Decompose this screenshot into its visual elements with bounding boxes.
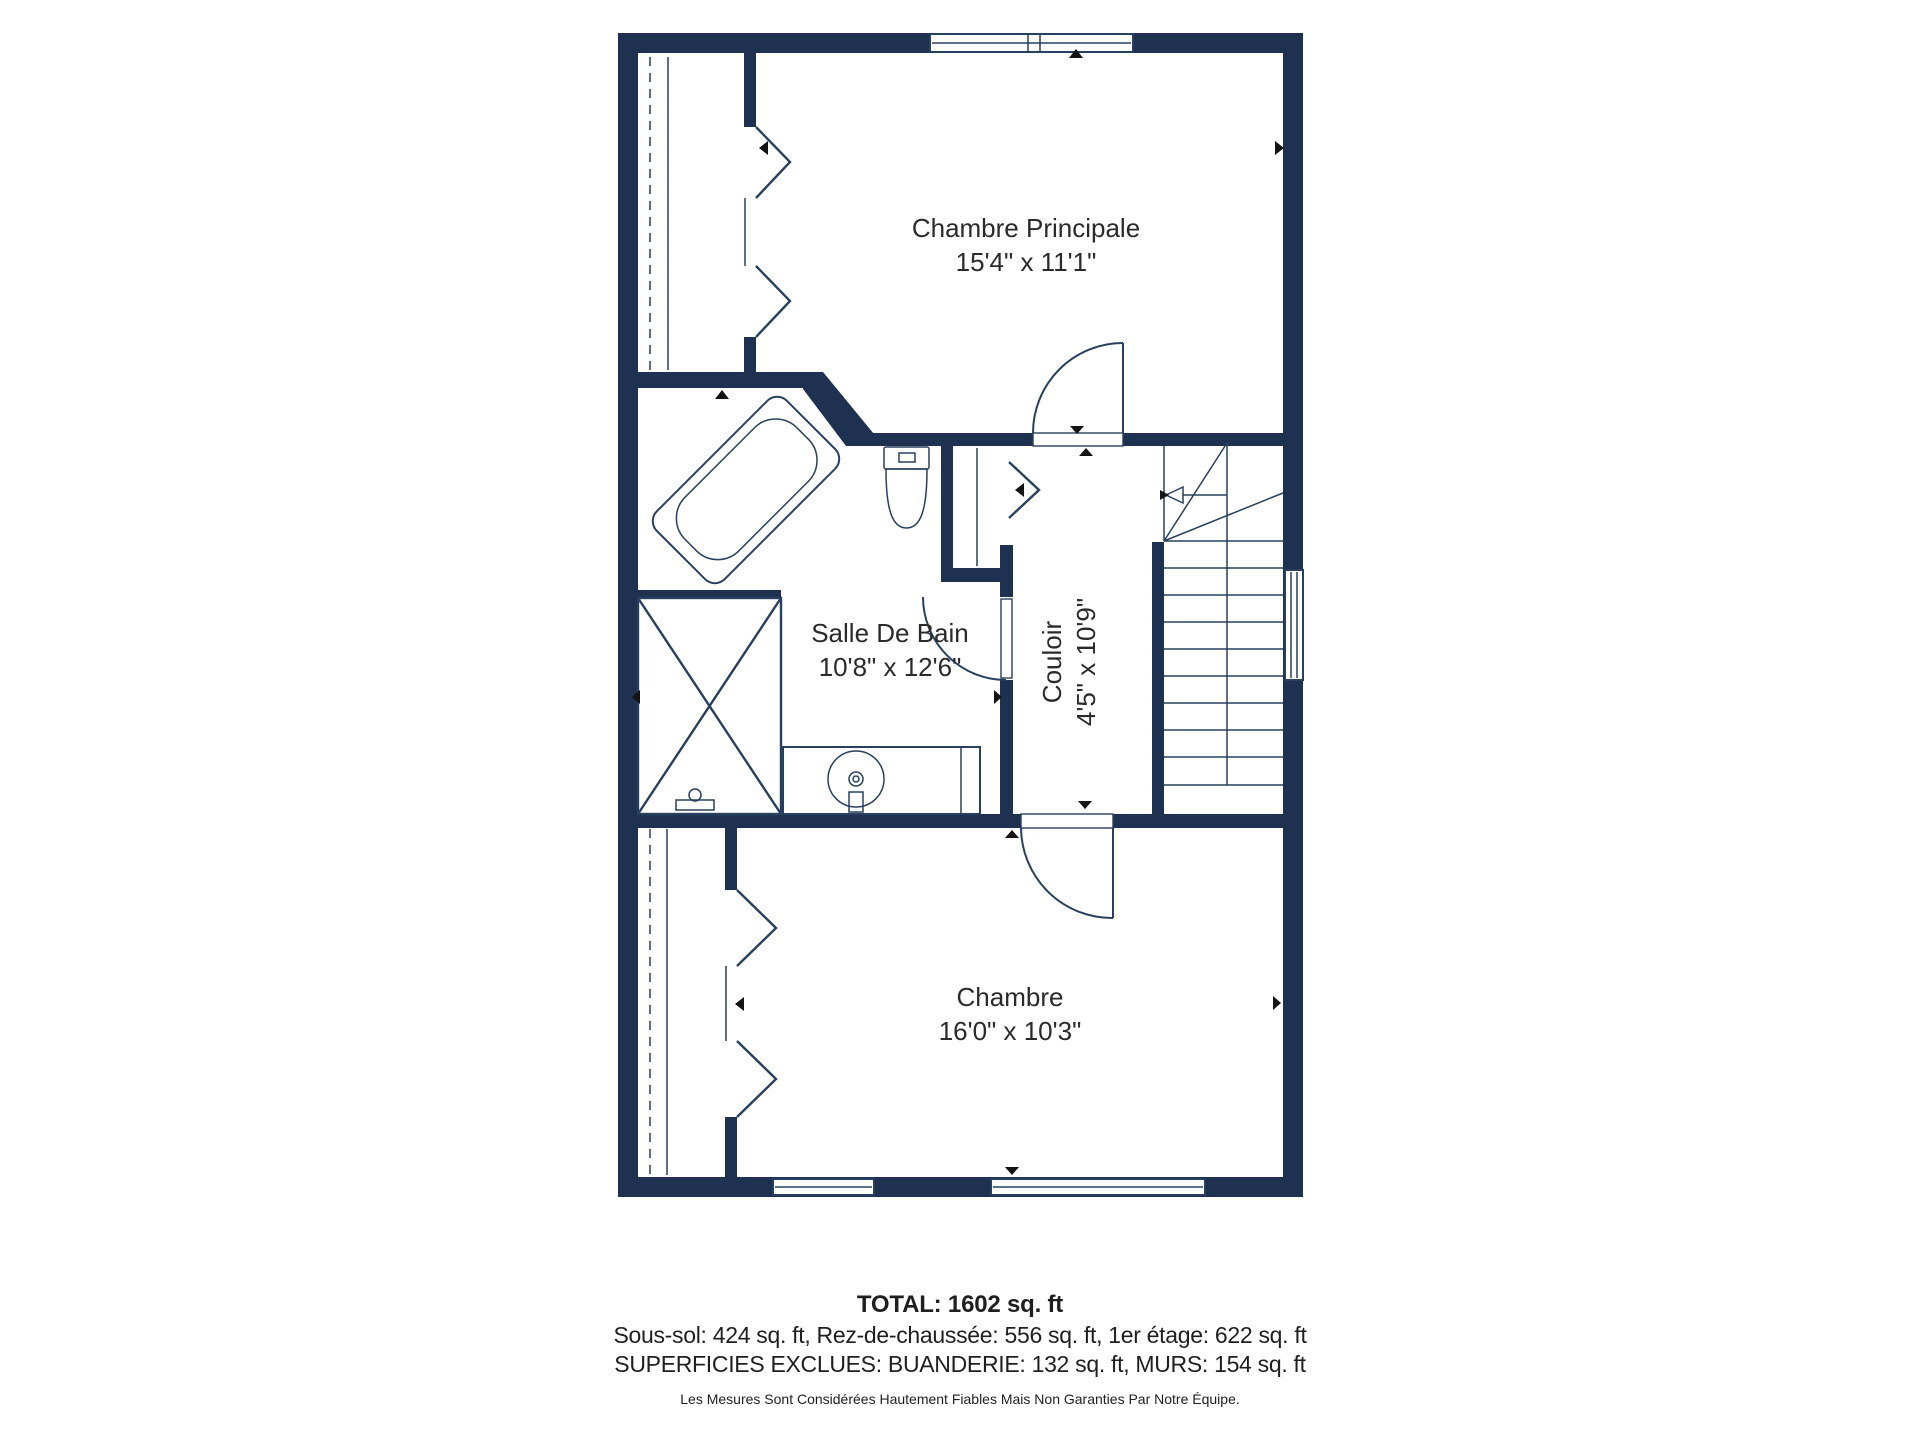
wall-closet-top-pier-a <box>744 53 756 127</box>
door-bedroom2 <box>1021 814 1113 918</box>
label-chambre-dims: 16'0" x 10'3" <box>939 1016 1082 1046</box>
wall-bath-top <box>618 372 805 388</box>
wall-hall-west-pier <box>1000 545 1013 597</box>
closet-bedroom2-interior <box>650 829 667 1175</box>
vanity-sink <box>783 747 980 814</box>
wall-shower-stub <box>618 590 781 598</box>
stairs <box>1160 443 1283 785</box>
marker-tub <box>715 390 729 399</box>
label-chambre-principale-dims: 15'4" x 11'1" <box>956 247 1097 277</box>
wall-linen-left <box>941 446 953 568</box>
wall-mid-right <box>1123 433 1283 446</box>
shower <box>638 598 781 814</box>
marker-master-right <box>1275 141 1284 155</box>
wall-left <box>618 33 638 1197</box>
stair-direction-arrow <box>1160 487 1227 503</box>
summary-exclusions: SUPERFICIES EXCLUES: BUANDERIE: 132 sq. … <box>614 1351 1306 1377</box>
window-right-stairwell <box>1285 570 1303 680</box>
marker-bottom-window <box>1005 1167 1019 1175</box>
label-salle-de-bain: Salle De Bain <box>811 618 969 648</box>
wall-hall-west-lower <box>1000 680 1013 814</box>
floorplan-canvas: Chambre Principale 15'4" x 11'1" Salle D… <box>0 0 1920 1440</box>
marker-closet-bedroom2 <box>735 997 744 1011</box>
marker-closet-master <box>759 141 768 155</box>
label-chambre: Chambre <box>957 982 1064 1012</box>
marker-master-door-bottom <box>1079 448 1093 456</box>
marker-linen <box>1015 483 1024 497</box>
wall-closet2-pier-b <box>725 1117 737 1177</box>
label-couloir: Couloir <box>1037 620 1067 703</box>
shower-valve-icon <box>676 789 714 810</box>
bathtub <box>647 391 845 589</box>
room-labels: Chambre Principale 15'4" x 11'1" Salle D… <box>811 213 1140 1046</box>
marker-bed2-door-top <box>1078 801 1092 809</box>
marker-bed2-door-bottom <box>1005 830 1019 838</box>
summary-floors: Sous-sol: 424 sq. ft, Rez-de-chaussée: 5… <box>613 1322 1307 1348</box>
wall-midbottom-left <box>618 814 1021 828</box>
summary-total: TOTAL: 1602 sq. ft <box>857 1291 1063 1318</box>
label-chambre-principale: Chambre Principale <box>912 213 1140 243</box>
toilet <box>884 447 929 528</box>
closet-master-interior <box>650 57 668 370</box>
summary-block: TOTAL: 1602 sq. ft Sous-sol: 424 sq. ft,… <box>613 1291 1307 1407</box>
wall-midbottom-right <box>1113 814 1283 828</box>
label-salle-de-bain-dims: 10'8" x 12'6" <box>819 652 962 682</box>
wall-stair <box>1152 542 1164 814</box>
door-closet-bedroom2-bifold <box>726 890 776 1117</box>
window-bottom-2 <box>991 1179 1205 1195</box>
floorplan-page: Chambre Principale 15'4" x 11'1" Salle D… <box>0 0 1920 1440</box>
summary-disclaimer: Les Mesures Sont Considérées Hautement F… <box>680 1391 1240 1407</box>
wall-mid-left <box>846 433 1033 446</box>
label-couloir-dims: 4'5" x 10'9" <box>1071 598 1101 726</box>
wall-closet2-pier-a <box>725 828 737 890</box>
window-bottom-1 <box>773 1179 874 1195</box>
wall-closet-top-pier-b <box>744 337 756 373</box>
label-couloir-group: Couloir 4'5" x 10'9" <box>1037 598 1101 726</box>
marker-bedroom2-right <box>1273 996 1281 1010</box>
window-top <box>930 34 1133 52</box>
door-closet-master-bifold <box>745 127 790 337</box>
